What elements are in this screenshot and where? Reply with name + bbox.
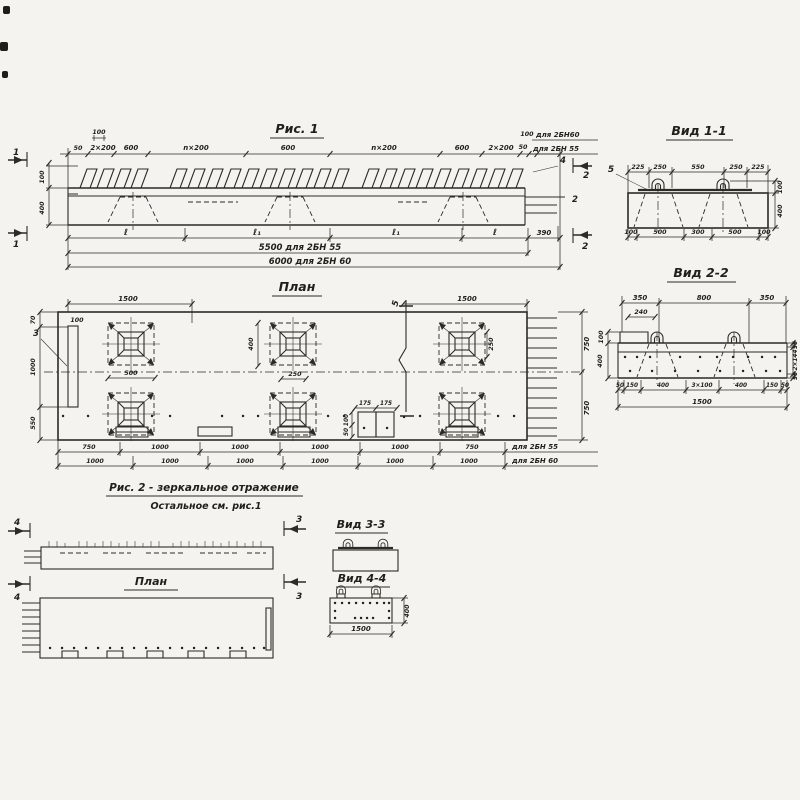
dim-label: 1500 [692,398,712,406]
dim-label: 1500 [351,625,371,633]
dim-label: 2×144 [793,350,799,371]
dim-label: 750 [82,444,96,451]
section-mark-4: 4 [13,518,20,528]
dim-label: 350 [633,294,648,302]
dim-label: ℓ [493,228,497,238]
section-mark-3: 3 [296,592,302,602]
dim-label: 100 [757,229,771,236]
dim-label: 175 [359,401,371,407]
mirror-elevation [24,541,273,569]
view-3-3-title: Вид 3-3 [337,518,386,531]
dim-label: 1000 [386,458,404,465]
dim-label: 100 [777,180,784,194]
dim-label: 390 [537,229,552,237]
dim-label: 1000 [311,444,329,451]
dim-label: 1000 [151,444,169,451]
dim-label: 400 [657,383,669,389]
dim-label: 1000 [236,458,254,465]
section-mark-2: 2 [582,242,588,252]
dim-label: 250 [288,371,302,378]
dim-label: 250 [653,164,667,171]
dim-label: 800 [697,294,712,302]
section-mark-2: 2 [583,171,589,181]
dim-label: 50 [74,145,83,152]
dim-label: ℓ [124,228,128,238]
dim-label: 350 [760,294,775,302]
dim-label: ℓ₁ [253,228,261,238]
figure-1: Рис. 1 1 1 2 2 4 2 100 50 2×200 600 n×20… [8,121,598,270]
view-2-2-title: Вид 2-2 [673,265,728,280]
dim-label: 500 [124,370,138,377]
dim-label: 1000 [391,444,409,451]
figure-1-title: Рис. 1 [275,121,318,136]
section-mark-1: 1 [13,240,19,250]
pos-label-2: 2 [572,195,578,205]
dim-label: 100 [39,170,46,184]
embedded-part: 175 175 100 50 [344,401,400,440]
pos-label-3: 3 [33,329,39,339]
total-dim-55: 5500 для 2БН 55 [259,243,342,253]
plan-note-60: для 2БН 60 [511,457,558,465]
view-4-4-title: Вид 4-4 [338,572,387,585]
dim-label: 50 [344,428,350,436]
dim-label: 750 [583,337,591,352]
dim-label: 175 [380,401,392,407]
dim-label: 2×200 [488,144,513,152]
dim-label: 600 [455,144,470,152]
dim-label: 400 [39,201,46,215]
figure-2-caption: Рис. 2 - зеркальное отражение [109,482,299,494]
dim-label: 1500 [457,295,477,303]
plan-view: План 100 3 1500 1500 5 500 400 250 250 1… [30,279,598,470]
dim-label: 50 [781,383,789,389]
view-3-3: Вид 3-3 [333,518,398,571]
pos-label-5: 5 [608,165,614,175]
dim-label: 50 [616,383,624,389]
plan-note-55: для 2БН 55 [511,443,558,451]
dim-label: 400 [777,204,784,218]
view-1-1: Вид 1-1 225 250 550 250 225 5 100 400 10… [608,123,784,241]
plan-title: План [279,279,316,294]
dim-label: 500 [653,229,667,236]
dim-label: 500 [728,229,742,236]
beam-elevation [68,169,565,230]
view-2-2: Вид 2-2 350 800 350 240 100 400 56 2×144… [597,265,799,411]
dim-label: 600 [124,144,139,152]
dim-label: 400 [597,354,604,368]
dim-label: 250 [488,337,495,351]
dim-label: 2×200 [90,144,115,152]
figure-2: Рис. 2 - зеркальное отражение Остальное … [8,482,306,658]
drawing-sheet: Рис. 1 1 1 2 2 4 2 100 50 2×200 600 n×20… [0,0,800,800]
dim-label: 750 [583,401,591,416]
dim-label: 100 [344,414,350,426]
dim-label: 1000 [231,444,249,451]
dim-label: 70 [30,315,37,324]
dim-label: 1000 [86,458,104,465]
mirror-plan [22,598,273,658]
dim-label: 600 [281,144,296,152]
dim-label: 300 [691,229,705,236]
dim-label: 100 [598,330,605,344]
dim-label: 550 [30,416,37,430]
figure-2-subcaption: Остальное см. рис.1 [150,501,261,512]
dim-label: 150 [766,383,778,389]
dim-label: 1500 [118,295,138,303]
dim-label: 1000 [460,458,478,465]
dim-label: 240 [634,309,648,316]
dim-label: 400 [735,383,747,389]
dim-label: 100 [624,229,638,236]
dim-label: 225 [751,164,765,171]
dim-label: ℓ₁ [392,228,400,238]
dim-label: n×200 [371,144,397,152]
dim-label: 550 [691,164,705,171]
dim-label: 56 [793,372,799,380]
blueprint-canvas: Рис. 1 1 1 2 2 4 2 100 50 2×200 600 n×20… [0,0,800,800]
dim-label: 3×100 [692,383,713,389]
dim-label: 400 [404,604,411,618]
dim-label: 1000 [30,358,37,376]
dim-label: 56 [793,341,799,349]
view-4-4: Вид 4-4 400 1500 [328,572,412,638]
mirror-plan-title: План [135,575,168,588]
dim-label: 400 [248,337,255,351]
dim-label: 100 [520,131,534,138]
dim-label: 250 [729,164,743,171]
dim-label: 150 [626,383,638,389]
scan-artifacts [0,6,10,78]
section-mark-4: 4 [13,593,20,603]
dim-label: 225 [631,164,645,171]
dim-label: 50 [519,144,528,151]
dim-label: 1000 [161,458,179,465]
dim-label: n×200 [183,144,209,152]
section-mark-1: 1 [13,148,19,158]
view-1-1-title: Вид 1-1 [671,123,726,138]
total-dim-60: 6000 для 2БН 60 [269,257,352,267]
dim-label: 750 [465,444,479,451]
dim-label: 100 [70,317,84,324]
section-mark-3: 3 [296,515,302,525]
dim-label: 100 [92,129,106,136]
beam-note-60: для 2БН60 [535,131,580,139]
dim-label: 1000 [311,458,329,465]
